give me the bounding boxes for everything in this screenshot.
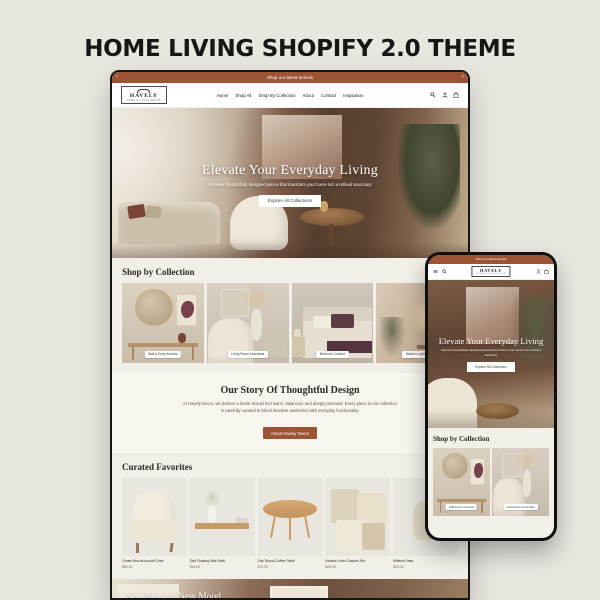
account-icon[interactable] <box>442 92 448 98</box>
product-grid: Cream Boucle Accent Chair $50.00 Oak Flo… <box>122 478 458 569</box>
product-name: Minimal Vase <box>393 559 458 563</box>
promo-title: HOME LIVING SHOPIFY 2.0 THEME <box>0 36 600 62</box>
mobile-mockup: Shop our latest arrivals HAVELY HOME & L… <box>425 252 557 541</box>
console-leg-decor <box>481 502 483 514</box>
collection-card-living-room[interactable]: Living Room Essentials <box>492 448 549 516</box>
console-leg-decor <box>440 502 442 514</box>
search-icon[interactable] <box>442 269 447 274</box>
announcement-next-icon[interactable]: › <box>462 72 464 82</box>
product-image <box>325 478 390 556</box>
collection-card-label: Living Room Essentials <box>504 504 538 510</box>
hero-title: Elevate Your Everyday Living <box>439 336 544 346</box>
vase-decor <box>208 506 216 524</box>
lamp-decor <box>294 329 301 337</box>
favorites-section: Curated Favorites Cream Boucle Accent Ch… <box>112 453 468 579</box>
collections-section: Shop by Collection Wall & Entry Accents <box>112 258 468 373</box>
cushion-decor <box>362 523 385 550</box>
logo-name: HAVELY <box>476 268 505 273</box>
mobile-screen: Shop our latest arrivals HAVELY HOME & L… <box>428 255 554 538</box>
collection-card-living-room[interactable]: Living Room Essentials <box>207 283 289 363</box>
logo-roof-icon <box>137 89 150 93</box>
product-card-coffee-table[interactable]: Oak Round Coffee Table $70.00 <box>258 478 323 569</box>
product-price: $29.00 <box>393 565 458 569</box>
announcement-bar: ‹ Shop our latest arrivals › <box>112 72 468 83</box>
brand-logo[interactable]: HAVELY HOME & LIVING DECOR <box>121 86 167 104</box>
story-section: Our Story Of Thoughtful Design At Havely… <box>112 373 468 453</box>
favorites-heading: Curated Favorites <box>122 462 458 472</box>
shelf-decor <box>195 523 249 528</box>
collections-heading: Shop by Collection <box>433 435 549 443</box>
boucle-chair-decor <box>493 478 525 516</box>
product-name: Oak Round Coffee Table <box>258 559 323 563</box>
mobile-header-left-icons <box>433 269 447 274</box>
console-decor <box>437 499 486 502</box>
product-price: $70.00 <box>258 565 323 569</box>
hero-content: Elevate Your Everyday Living Discover th… <box>112 108 468 258</box>
table-top-decor <box>263 500 317 519</box>
product-name: Oak Floating Wall Shelf <box>190 559 255 563</box>
collection-card-bedroom[interactable]: Bedroom Comfort <box>292 283 374 363</box>
chair-seat-decor <box>130 520 178 540</box>
seasonal-banner: New Season. New Mood. Refresh your space… <box>112 579 468 600</box>
menu-icon[interactable] <box>433 269 438 274</box>
chair-leg-decor <box>169 543 173 553</box>
vase-decor <box>178 333 185 343</box>
mobile-collection-cards: Wall & Entry Accents Living Room Essenti… <box>433 448 549 516</box>
collection-card-label: Wall & Entry Accents <box>446 504 477 510</box>
pillow-decor <box>331 314 354 328</box>
header-icons <box>430 92 459 98</box>
nightstand-decor <box>292 337 305 356</box>
brand-logo[interactable]: HAVELY HOME & LIVING DECOR <box>471 266 510 278</box>
cushion-decor <box>331 489 360 523</box>
mobile-header-right-icons <box>536 269 550 274</box>
site-header: HAVELY HOME & LIVING DECOR Home Shop All… <box>112 83 468 108</box>
product-price: $45.00 <box>190 565 255 569</box>
product-image <box>190 478 255 556</box>
desktop-mockup: ‹ Shop our latest arrivals › HAVELY HOME… <box>110 70 470 600</box>
cart-icon[interactable] <box>544 269 549 274</box>
story-heading: Our Story Of Thoughtful Design <box>172 385 408 396</box>
collection-card-label: Wall & Entry Accents <box>145 351 181 358</box>
hero-banner: Elevate Your Everyday Living Discover th… <box>112 108 468 258</box>
hero-cta-button[interactable]: Explore All Collections <box>259 195 322 207</box>
product-card-cushion-set[interactable]: Neutral Linen Cushion Set $25.00 <box>325 478 390 569</box>
product-image <box>258 478 323 556</box>
vase-decor <box>251 309 262 341</box>
logo-tagline: HOME & LIVING DECOR <box>127 100 161 102</box>
nav-item-shop-by-collection[interactable]: Shop By Collection <box>258 93 295 98</box>
console-leg-decor <box>192 346 194 360</box>
story-cta-button[interactable]: About Havely Decor <box>263 427 317 439</box>
product-price: $50.00 <box>122 565 187 569</box>
hero-cta-button[interactable]: Explore All Collections <box>467 362 515 372</box>
console-decor <box>128 343 198 347</box>
announcement-text: Shop our latest arrivals <box>267 75 313 80</box>
table-leg-decor <box>304 515 310 538</box>
search-icon[interactable] <box>430 92 436 98</box>
table-leg-decor <box>289 517 291 540</box>
mobile-header: HAVELY HOME & LIVING DECOR <box>428 264 554 280</box>
product-image <box>122 478 187 556</box>
table-leg-decor <box>270 515 276 538</box>
mobile-announcement-bar: Shop our latest arrivals <box>428 255 554 264</box>
collection-card-label: Bedroom Comfort <box>316 351 348 358</box>
announcement-text: Shop our latest arrivals <box>476 257 507 261</box>
collection-cards: Wall & Entry Accents Living Room Essenti… <box>122 283 458 363</box>
mirror-decor <box>442 453 468 479</box>
console-leg-decor <box>132 346 134 360</box>
mobile-hero-banner: Elevate Your Everyday Living Discover th… <box>428 280 554 428</box>
promo-canvas: HOME LIVING SHOPIFY 2.0 THEME ‹ Shop our… <box>0 0 600 600</box>
pampas-decor <box>243 285 272 312</box>
branch-decor <box>204 489 221 508</box>
mobile-hero-content: Elevate Your Everyday Living Discover th… <box>428 280 554 428</box>
logo-name: HAVELY <box>127 93 161 99</box>
vase-decor <box>523 470 531 497</box>
collections-heading: Shop by Collection <box>122 267 458 277</box>
story-body: At Havely Decor, we believe a home shoul… <box>183 401 398 415</box>
nav-item-shop-all[interactable]: Shop All <box>235 93 251 98</box>
nav-item-contact[interactable]: Contact <box>321 93 336 98</box>
banner-content: New Season. New Mood. Refresh your space… <box>126 592 226 600</box>
chair-leg-decor <box>136 543 139 552</box>
pillow-decor <box>313 316 333 328</box>
product-name: Cream Boucle Accent Chair <box>122 559 187 563</box>
mirror-decor <box>135 289 173 327</box>
collection-card-label: Living Room Essentials <box>228 351 268 358</box>
announcement-prev-icon[interactable]: ‹ <box>116 72 118 82</box>
product-card-wall-shelf[interactable]: Oak Floating Wall Shelf $45.00 <box>190 478 255 569</box>
banner-heading: New Season. New Mood. <box>126 592 226 600</box>
collection-card-wall-entry[interactable]: Wall & Entry Accents <box>433 448 490 516</box>
product-card-accent-chair[interactable]: Cream Boucle Accent Chair $50.00 <box>122 478 187 569</box>
hero-title: Elevate Your Everyday Living <box>202 163 378 179</box>
cart-icon[interactable] <box>453 92 459 98</box>
main-nav: Home Shop All Shop By Collection About C… <box>217 93 364 98</box>
account-icon[interactable] <box>536 269 541 274</box>
nav-item-home[interactable]: Home <box>217 93 229 98</box>
product-price: $25.00 <box>325 565 390 569</box>
nav-item-about[interactable]: About <box>303 93 314 98</box>
frame-decor <box>270 586 328 600</box>
product-name: Neutral Linen Cushion Set <box>325 559 390 563</box>
mobile-collections-section: Shop by Collection Wall & Entry Accents <box>428 428 554 522</box>
collection-card-wall-entry[interactable]: Wall & Entry Accents <box>122 283 204 363</box>
hero-subtitle: Discover thoughtfully designed pieces th… <box>439 348 544 357</box>
logo-tagline: HOME & LIVING DECOR <box>476 273 505 275</box>
hero-subtitle: Discover thoughtfully designed pieces th… <box>209 182 372 189</box>
nav-item-inspiration[interactable]: Inspiration <box>343 93 363 98</box>
